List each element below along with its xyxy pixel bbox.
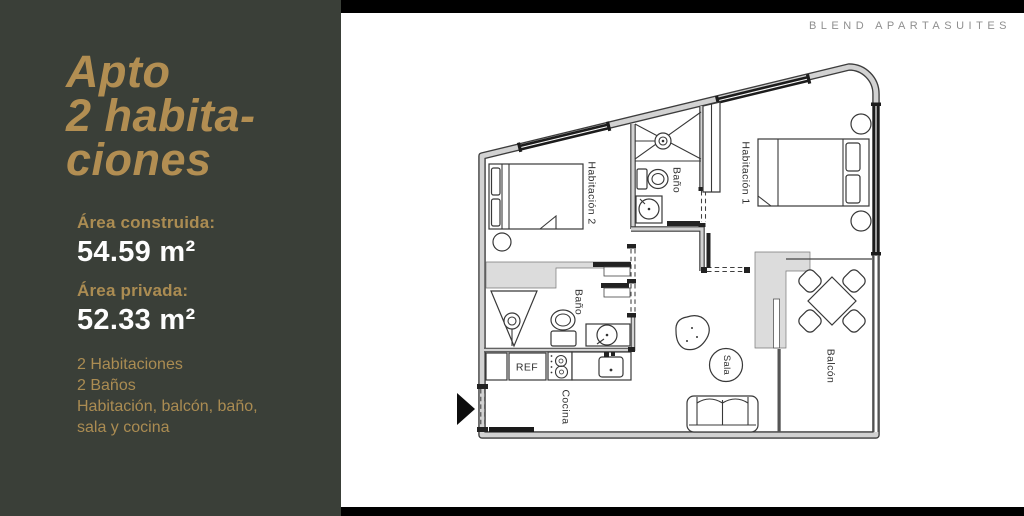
fridge-label: REF [516, 362, 538, 374]
bath-top-label: Baño [671, 167, 683, 193]
bedroom2-furniture [489, 164, 583, 251]
page-title: Apto 2 habita- ciones [66, 50, 256, 182]
private-area-value: 52.33 m² [77, 304, 195, 337]
title-line-2: 2 habita- [66, 94, 256, 138]
info-panel: Apto 2 habita- ciones Área construida: 5… [0, 0, 341, 516]
balcony-label: Balcón [825, 349, 837, 384]
slide: { "brand": "BLEND APARTASUITES", "panel"… [0, 0, 1024, 516]
feature-item: Habitación, balcón, baño, [77, 396, 258, 417]
title-line-1: Apto [66, 50, 256, 94]
bedroom2-label: Habitación 2 [586, 161, 598, 224]
top-letterbox-bar [341, 0, 1024, 13]
bath-top-fixtures [635, 112, 701, 223]
bedroom1-furniture [703, 102, 871, 231]
entrance-arrow-icon [457, 393, 475, 425]
private-area-label: Área privada: [77, 281, 188, 301]
floor-plan-svg: Habitación 2 Baño Habitación 1 Baño REF … [448, 52, 888, 442]
balcony-partition [774, 299, 781, 432]
window-slope-right [715, 74, 811, 106]
floor-plan: Habitación 2 Baño Habitación 1 Baño REF … [448, 52, 888, 442]
living-furniture [676, 316, 758, 432]
living-wall-mass [755, 252, 810, 348]
bath-bottom-fixtures [491, 291, 630, 346]
living-label: Sala [721, 355, 732, 376]
bottom-letterbox-bar [341, 507, 1024, 516]
brand-logo-text: BLEND APARTASUITES [809, 20, 1011, 32]
title-line-3: ciones [66, 138, 256, 182]
balcony-glass-railing [873, 256, 879, 432]
balcony-furniture [797, 268, 868, 335]
feature-item: 2 Baños [77, 375, 258, 396]
feature-item: sala y cocina [77, 417, 258, 438]
feature-item: 2 Habitaciones [77, 354, 258, 375]
built-area-value: 54.59 m² [77, 236, 195, 269]
bedroom1-label: Habitación 1 [740, 141, 752, 204]
built-area-label: Área construida: [77, 213, 215, 233]
feature-list: 2 Habitaciones 2 Baños Habitación, balcó… [77, 354, 258, 438]
bath-bottom-label: Baño [573, 289, 585, 315]
kitchen-label: Cocina [560, 389, 572, 424]
